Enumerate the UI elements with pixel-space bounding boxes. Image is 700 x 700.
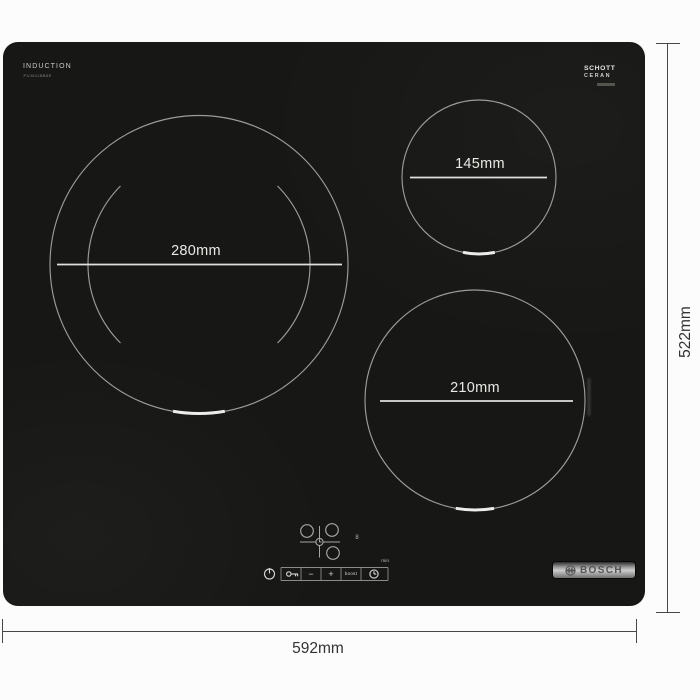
- cooktop-graphics: [3, 42, 645, 606]
- timer-display: 8: [352, 535, 362, 541]
- zone-280-rings: [50, 116, 348, 414]
- product-dimension-image: INDUCTION PUJ611BB5E SCHOTT CERAN 280mm …: [0, 0, 700, 700]
- zone-cross-icon: [300, 524, 340, 560]
- schott-logo-line1: SCHOTT: [584, 65, 624, 73]
- bosch-logo: BOSCH: [553, 562, 635, 578]
- schott-ceran-logo: SCHOTT CERAN: [584, 65, 624, 86]
- plus-key: +: [323, 568, 339, 580]
- schott-logo-line2: CERAN: [584, 73, 624, 79]
- height-dimension-tick-top: [656, 43, 680, 44]
- height-dimension-label: 522mm: [660, 306, 700, 358]
- width-dimension-tick-right: [636, 619, 637, 643]
- bosch-anchor-icon: [565, 565, 576, 576]
- width-dimension-line: [3, 631, 636, 632]
- width-dimension-label: 592mm: [268, 640, 368, 658]
- schott-logo-subtext: [597, 83, 615, 87]
- width-dimension-tick-left: [2, 619, 3, 643]
- clock-icon: [370, 570, 378, 578]
- min-unit-label: min: [373, 559, 389, 564]
- bosch-logo-text: BOSCH: [580, 565, 623, 576]
- boost-key: boost: [340, 568, 362, 580]
- key-icon: [287, 572, 298, 577]
- power-icon: [265, 568, 275, 579]
- height-dimension-tick-bottom: [656, 612, 680, 613]
- model-number: PUJ611BB5E: [24, 73, 52, 78]
- zone-210-ring: [365, 290, 585, 510]
- zone-145-ring: [402, 100, 556, 254]
- zone-280-diameter-label: 280mm: [141, 243, 251, 259]
- zone-210-diameter-label: 210mm: [420, 380, 530, 396]
- induction-label: INDUCTION: [23, 63, 72, 70]
- zone-145-diameter-label: 145mm: [425, 156, 535, 172]
- minus-key: −: [303, 568, 319, 580]
- cooktop-surface: INDUCTION PUJ611BB5E SCHOTT CERAN 280mm …: [3, 42, 645, 606]
- glass-reflection: [588, 378, 590, 416]
